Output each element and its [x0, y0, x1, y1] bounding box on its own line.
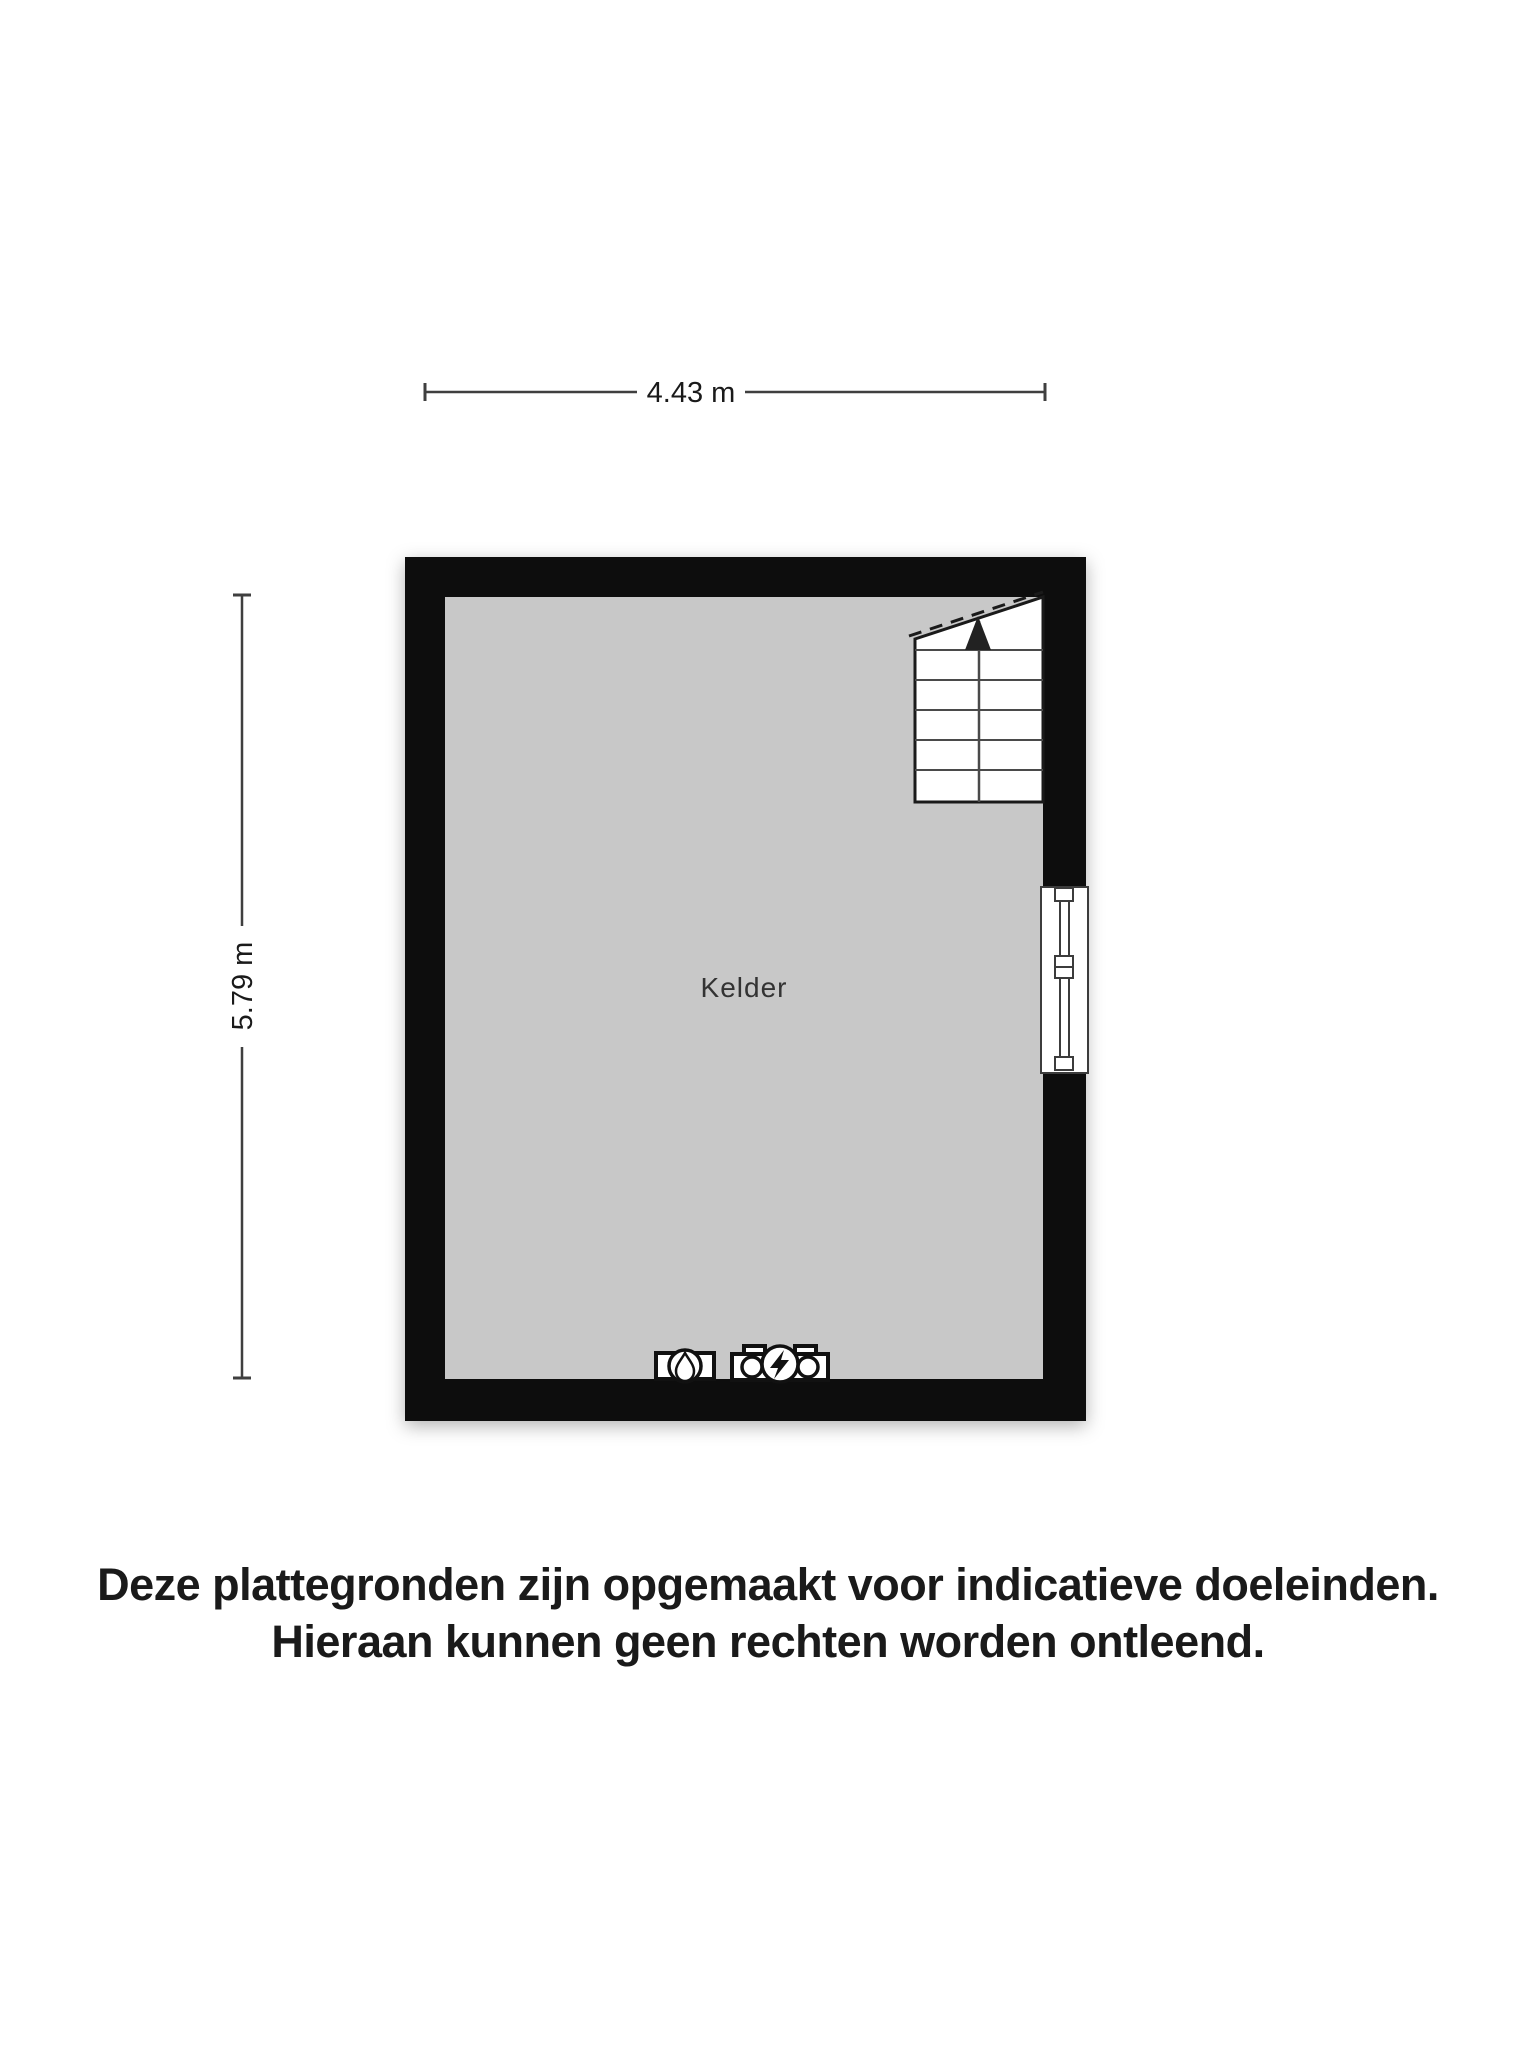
floorplan-canvas: 4.43 m 5.79 m — [0, 0, 1536, 2048]
water-meter-icon — [656, 1350, 714, 1382]
width-dimension-label: 4.43 m — [647, 377, 736, 409]
window-frame-block — [1055, 956, 1073, 967]
height-dimension: 5.79 m — [227, 595, 259, 1378]
meter-dial-left — [742, 1357, 762, 1377]
width-dimension: 4.43 m — [425, 377, 1045, 409]
height-dimension-label: 5.79 m — [227, 942, 259, 1031]
floorplan-page: 4.43 m 5.79 m — [0, 0, 1536, 2048]
building: Kelder — [405, 557, 1088, 1421]
room-label: Kelder — [701, 972, 788, 1003]
meter-dial-right — [798, 1357, 818, 1377]
window-frame-block — [1055, 967, 1073, 978]
window-frame-block — [1055, 1057, 1073, 1070]
electricity-meter-icon — [732, 1346, 828, 1382]
disclaimer-line2: Hieraan kunnen geen rechten worden ontle… — [0, 1613, 1536, 1670]
disclaimer-line1: Deze plattegronden zijn opgemaakt voor i… — [0, 1556, 1536, 1613]
window-opening — [1041, 887, 1088, 1073]
disclaimer: Deze plattegronden zijn opgemaakt voor i… — [0, 1556, 1536, 1670]
window-frame-block — [1055, 888, 1073, 901]
window-symbol — [1041, 887, 1088, 1073]
